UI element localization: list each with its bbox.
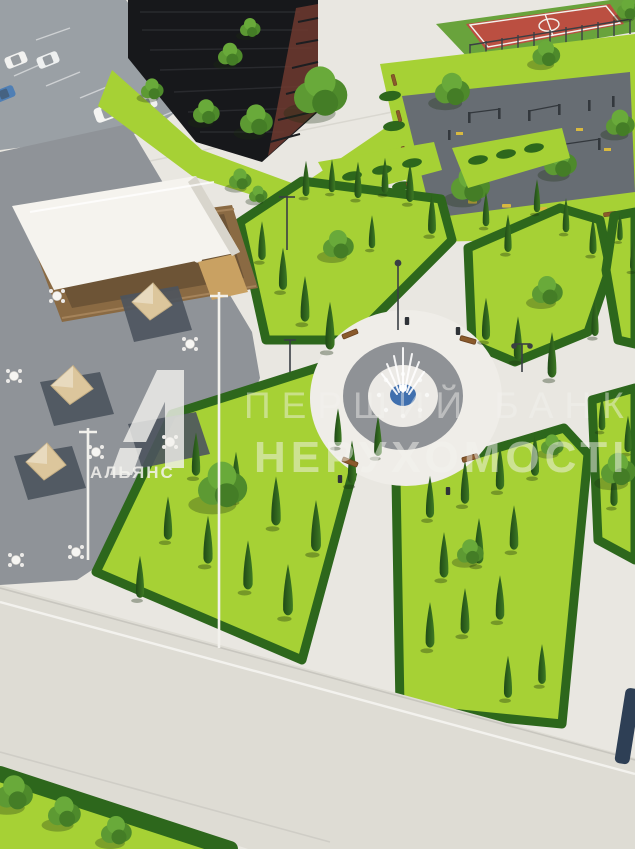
- watermark-line2: НЕРУХОМОСТІ: [254, 433, 629, 482]
- watermark-line1: ПЕРШИЙ БАНК: [244, 384, 635, 426]
- aerial-courtyard-render: АЛЬЯНС ПЕРШИЙ БАНК НЕРУХОМОСТІ: [0, 0, 635, 849]
- watermark-brand: АЛЬЯНС: [90, 463, 175, 482]
